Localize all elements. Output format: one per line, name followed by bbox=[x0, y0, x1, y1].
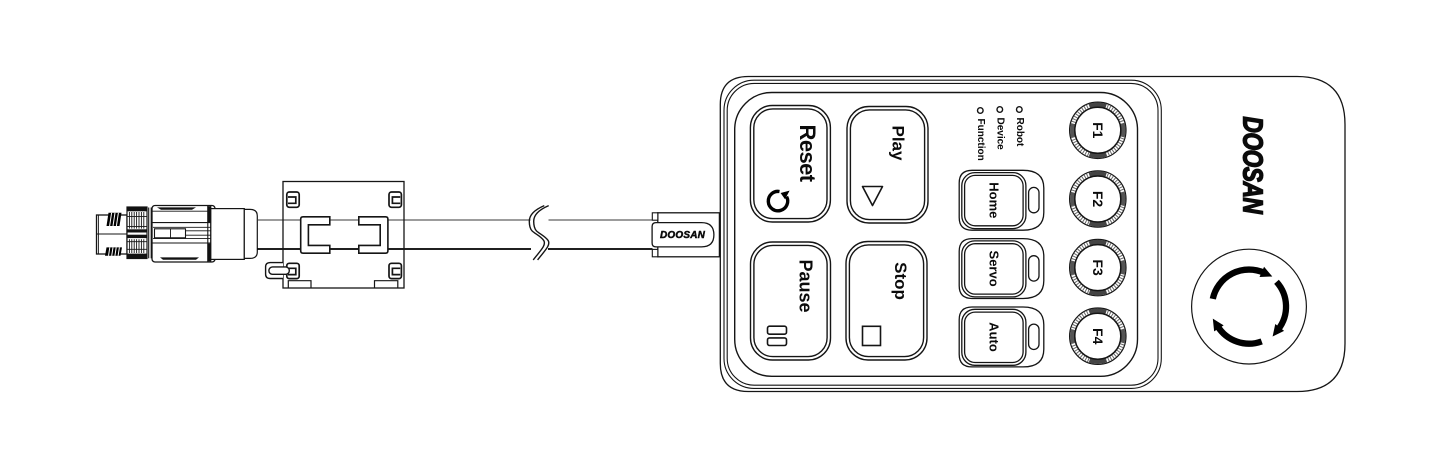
svg-text:Function: Function bbox=[975, 119, 986, 161]
svg-text:Pause: Pause bbox=[795, 259, 815, 312]
svg-text:DOOSAN: DOOSAN bbox=[660, 230, 706, 241]
svg-text:Auto: Auto bbox=[986, 322, 1001, 352]
svg-text:F1: F1 bbox=[1090, 122, 1106, 139]
svg-text:Home: Home bbox=[986, 182, 1001, 218]
svg-text:F3: F3 bbox=[1090, 259, 1106, 276]
svg-text:F4: F4 bbox=[1090, 328, 1106, 345]
svg-text:DOOSAN: DOOSAN bbox=[1237, 117, 1268, 215]
svg-text:Stop: Stop bbox=[891, 262, 910, 300]
svg-text:Reset: Reset bbox=[795, 125, 820, 183]
svg-text:Device: Device bbox=[994, 118, 1005, 151]
svg-text:Play: Play bbox=[888, 126, 907, 162]
svg-text:F2: F2 bbox=[1090, 191, 1106, 208]
svg-text:Servo: Servo bbox=[986, 251, 1001, 287]
svg-text:Robot: Robot bbox=[1014, 118, 1025, 148]
